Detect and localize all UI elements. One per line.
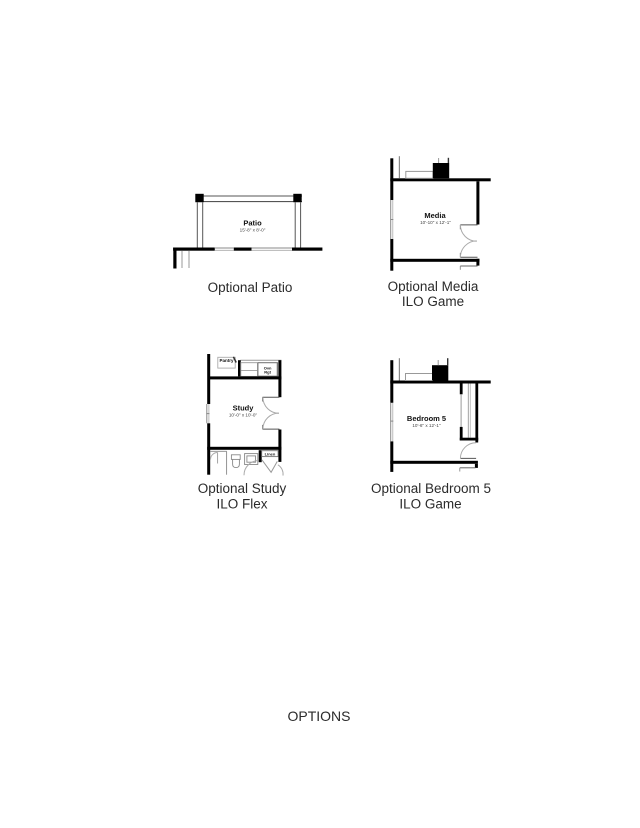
svg-text:Study: Study [233,404,255,413]
svg-text:10'-10" x 12'-1": 10'-10" x 12'-1" [420,220,451,225]
svg-text:15'-8" x 8'-0": 15'-8" x 8'-0" [240,227,266,232]
svg-text:Bedroom 5: Bedroom 5 [407,414,446,423]
svg-text:Optional Media: Optional Media [388,279,479,294]
svg-text:Media: Media [424,211,446,220]
svg-text:Linen: Linen [265,452,276,457]
svg-text:OPTIONS: OPTIONS [287,708,350,724]
svg-text:ILO Flex: ILO Flex [216,497,267,512]
svg-text:Pantry: Pantry [219,358,234,363]
svg-text:Optional Bedroom 5: Optional Bedroom 5 [371,481,491,496]
svg-text:Optional Study: Optional Study [198,481,287,496]
svg-text:Optional Patio: Optional Patio [208,280,293,295]
svg-text:10'-0" x 10'-0": 10'-0" x 10'-0" [229,413,258,418]
svg-text:ILO Game: ILO Game [402,294,464,309]
svg-text:Rgt: Rgt [264,370,271,375]
svg-text:Patio: Patio [243,219,262,228]
svg-text:10'-6" x 12'-1": 10'-6" x 12'-1" [412,423,441,428]
svg-text:ILO Game: ILO Game [399,497,461,512]
